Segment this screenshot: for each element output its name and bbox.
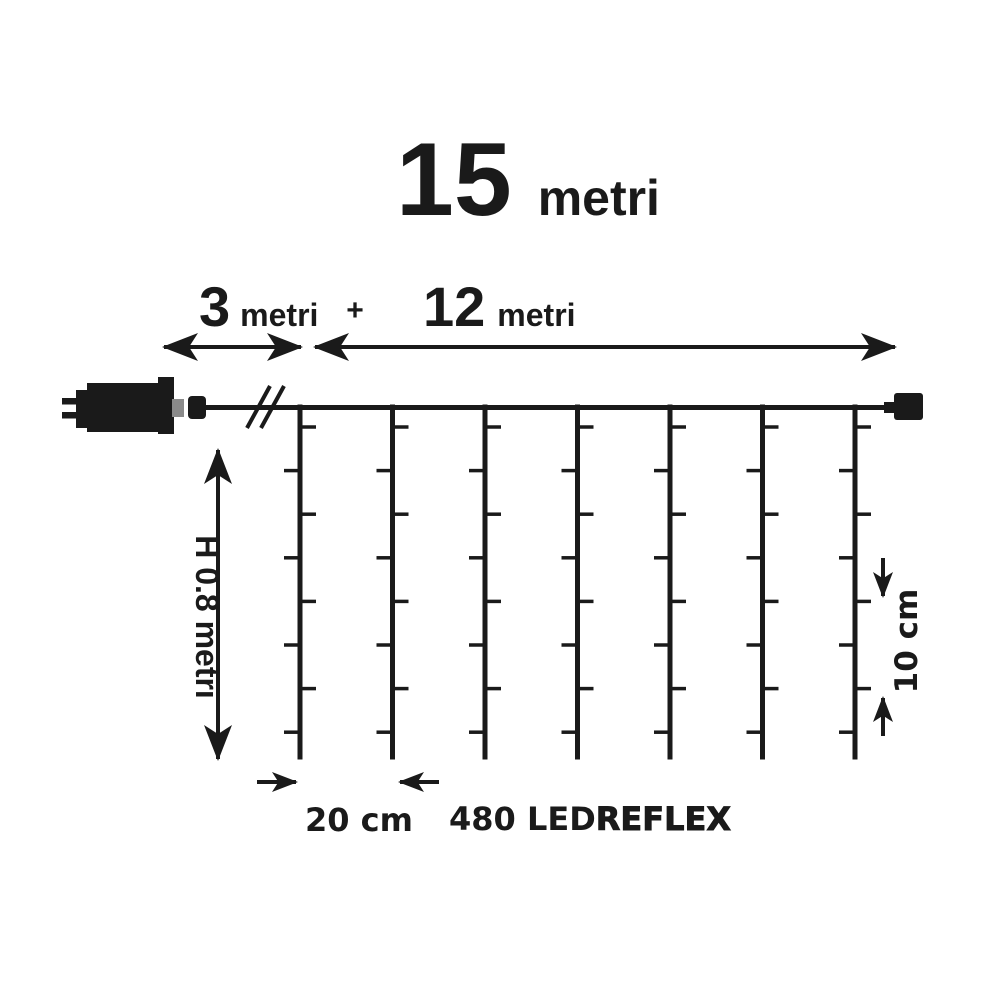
plus-sign: + xyxy=(346,294,364,327)
diagram-canvas: 15metri 3metri + 12metri xyxy=(0,0,1000,1000)
segment1-label: 3metri xyxy=(199,275,318,338)
title-text: 15metri xyxy=(396,122,660,238)
segment2-value: 12 xyxy=(423,275,485,338)
segment1-unit: metri xyxy=(240,297,318,333)
power-plug-icon xyxy=(62,377,206,434)
plug-gray-coupler xyxy=(172,399,184,417)
vertical-spacing-label: 10 cm xyxy=(889,589,925,694)
curtain-drops xyxy=(284,407,871,757)
height-label: H 0.8 metri xyxy=(189,535,225,699)
end-connector-icon xyxy=(884,393,923,420)
end-connector-body xyxy=(894,393,923,420)
horizontal-spacing-label: 20 cm xyxy=(305,801,413,839)
segment2-label: 12metri xyxy=(423,275,576,338)
led-curtain-dimension-diagram: 15metri 3metri + 12metri xyxy=(0,0,1000,1000)
plug-flange xyxy=(158,377,174,434)
segment1-value: 3 xyxy=(199,275,230,338)
led-count-label: 480 LEDREFLEX xyxy=(449,800,731,838)
title-unit: metri xyxy=(538,170,660,226)
segment2-unit: metri xyxy=(497,297,575,333)
title-number: 15 xyxy=(396,122,512,238)
plug-body xyxy=(87,383,163,432)
led-count: 480 LED xyxy=(449,800,596,838)
led-brand: REFLEX xyxy=(596,800,732,838)
inline-connector xyxy=(188,396,206,419)
